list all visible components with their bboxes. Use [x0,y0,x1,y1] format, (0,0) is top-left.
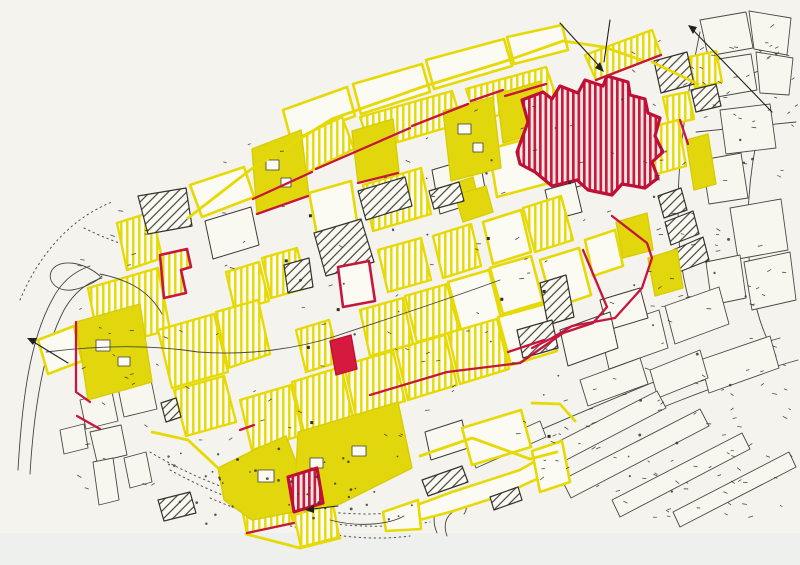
building-mark [543,290,546,293]
scan-dot [288,504,290,506]
scan-dot [205,522,207,524]
parcel-yellow-solid [616,213,653,258]
outer-parcel [700,12,753,56]
scan-dot [173,464,176,467]
scan-dot [343,283,345,285]
scan-dot [254,469,257,472]
scan-dot [222,482,224,484]
building-mark [568,181,571,184]
scan-dot [195,501,198,504]
parcel-red-hatched-small [288,468,323,512]
scan-dot [342,457,344,459]
scan-dot [628,456,630,458]
scan-dot [713,272,715,274]
scan-dot [727,238,730,241]
outer-parcel [756,52,793,95]
scan-dot [696,353,699,356]
scan-dot [638,434,641,437]
scan-dot [398,311,400,313]
scan-dot [666,224,668,226]
courtyard [96,340,110,351]
scan-dot [218,476,220,478]
scan-dot [324,461,326,463]
scan-dot [485,172,488,175]
scan-dot [312,517,315,520]
building-mark [310,421,313,424]
scan-dot [315,476,318,479]
scan-dot [660,147,662,149]
scan-dot [653,196,655,198]
courtyard [266,160,279,170]
outer-parcel [60,424,88,454]
scan-dot [290,480,293,483]
scan-dot [353,333,355,335]
scan-dot [675,442,678,445]
scan-dot [743,161,745,163]
scan-dot [397,456,399,458]
scan-dot [347,461,350,464]
outer-parcel [720,104,776,154]
parcel-yellow-solid [76,304,152,400]
scan-dot [217,453,219,455]
courtyard [118,357,130,366]
scan-tick [667,516,670,517]
scan-dot [633,284,635,286]
scan-dot [348,496,350,498]
scan-dot [490,341,492,343]
scan-tick [731,450,734,451]
scan-dot [214,513,217,516]
scan-dot [334,483,336,485]
scan-dot [373,491,375,493]
building-mark [309,214,312,217]
scan-dot [212,471,214,473]
building-mark [307,346,310,349]
scan-dot [231,505,233,507]
courtyard [473,143,483,152]
scan-dot [205,475,207,477]
parcel-yellow-solid [648,249,683,296]
scan-dot [350,507,353,510]
scan-dot [309,487,311,489]
scan-dot [729,384,732,387]
scan-dot [671,490,673,492]
scan-dot [249,471,251,473]
scan-dot [299,279,302,282]
scan-dot [490,159,492,161]
scan-tick [670,278,674,279]
scan-dot [398,515,400,517]
scan-edge-strip [0,533,800,565]
scan-dot [266,477,269,480]
cadastral-map [0,0,800,565]
scan-dot [426,234,428,236]
outer-parcel [749,11,791,55]
outer-parcel [744,252,796,310]
scan-dot [179,501,181,503]
scanned-map-page [0,0,800,565]
scan-dot [388,518,390,520]
paper-strip [0,533,800,565]
scan-dot [392,229,394,231]
scan-dot [317,501,320,504]
scan-dot [350,488,353,491]
scan-dot [306,493,308,495]
scan-dot [639,399,642,402]
scan-dot [426,177,428,179]
scan-dot [543,394,545,396]
scan-dot [629,475,631,477]
scan-dot [180,453,182,455]
scan-dot [557,375,559,377]
parcel-black-hatched [284,258,313,293]
courtyard [352,446,366,456]
building-mark [285,259,288,262]
scan-dot [621,98,623,100]
scan-dot [411,504,413,506]
scan-dot [555,127,557,129]
scan-dot [354,488,356,490]
outer-parcel [90,425,127,462]
scan-dot [236,458,239,461]
scan-tick [580,162,584,163]
building-mark [337,308,340,311]
scan-dot [277,479,280,482]
building-mark [487,237,490,240]
map-svg [0,0,800,565]
scan-dot [168,464,170,466]
scan-tick [519,278,524,279]
scan-dot [705,261,707,263]
courtyard [458,124,471,134]
courtyard [258,470,274,482]
parcel-yellow-outline [532,441,570,492]
scan-dot [277,448,280,451]
scan-dot [745,295,747,297]
outer-parcel [730,199,788,259]
parcel-black-hatched [138,188,192,234]
scan-dot [366,504,368,506]
building-mark [548,435,551,438]
scan-dot [751,158,754,161]
scan-dot [167,455,169,457]
building-mark [500,298,503,301]
scan-tick [77,265,81,266]
scan-dot [297,493,299,495]
scan-dot [665,151,667,153]
scan-dot [652,324,654,326]
scan-dot [739,139,741,141]
